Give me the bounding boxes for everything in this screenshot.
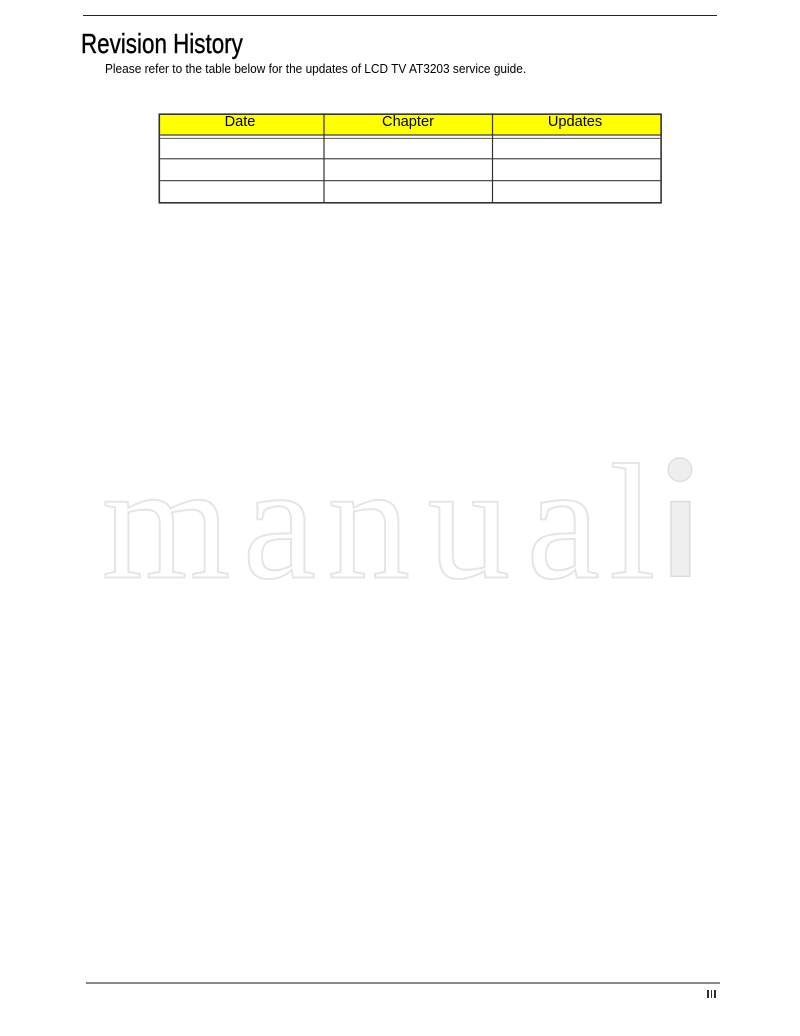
svg-text:manual: manual [102,431,668,601]
